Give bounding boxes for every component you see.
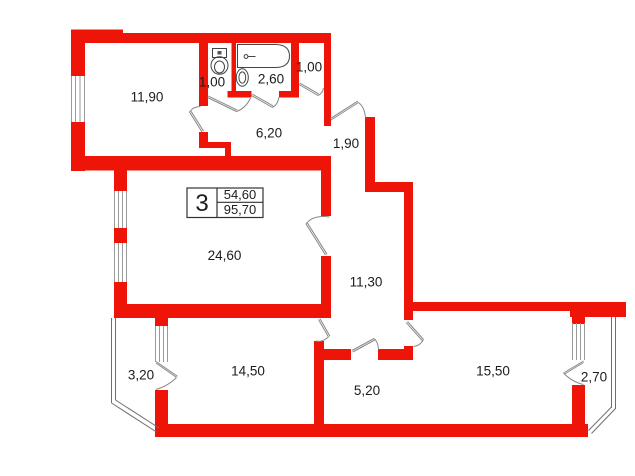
svg-text:1,00: 1,00 bbox=[199, 75, 225, 90]
svg-text:3: 3 bbox=[195, 190, 208, 217]
svg-text:2,70: 2,70 bbox=[581, 370, 607, 385]
svg-text:1,00: 1,00 bbox=[296, 60, 322, 75]
svg-text:15,50: 15,50 bbox=[476, 364, 510, 379]
svg-text:2,60: 2,60 bbox=[258, 72, 284, 87]
svg-text:54,60: 54,60 bbox=[224, 187, 257, 202]
svg-text:14,50: 14,50 bbox=[231, 364, 265, 379]
svg-text:24,60: 24,60 bbox=[208, 248, 242, 263]
svg-text:11,30: 11,30 bbox=[350, 275, 383, 290]
svg-text:1,90: 1,90 bbox=[333, 136, 359, 151]
svg-text:95,70: 95,70 bbox=[224, 202, 257, 217]
svg-text:3,20: 3,20 bbox=[128, 368, 154, 383]
svg-text:11,90: 11,90 bbox=[131, 90, 164, 105]
svg-text:6,20: 6,20 bbox=[256, 126, 282, 141]
svg-text:5,20: 5,20 bbox=[354, 383, 380, 398]
